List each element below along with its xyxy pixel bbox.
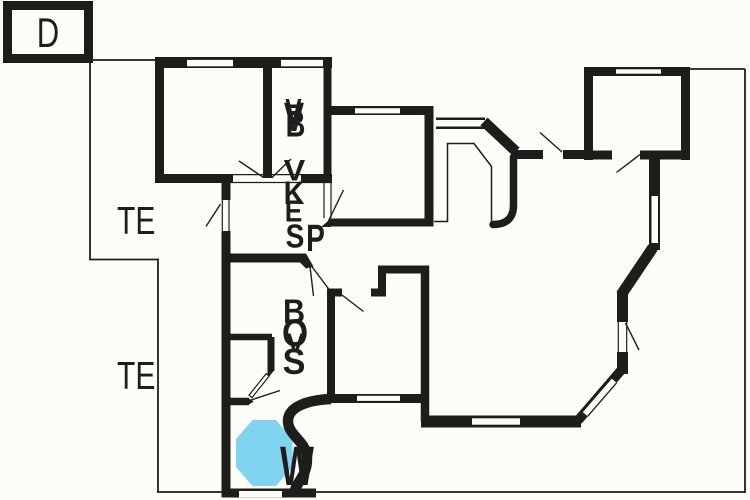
svg-text:TE: TE bbox=[117, 199, 155, 243]
svg-text:P: P bbox=[306, 218, 325, 260]
svg-text:S: S bbox=[286, 218, 305, 255]
svg-text:B: B bbox=[286, 104, 306, 145]
svg-text:D: D bbox=[37, 9, 59, 56]
svg-text:S: S bbox=[283, 342, 306, 382]
svg-text:TE: TE bbox=[117, 354, 155, 398]
